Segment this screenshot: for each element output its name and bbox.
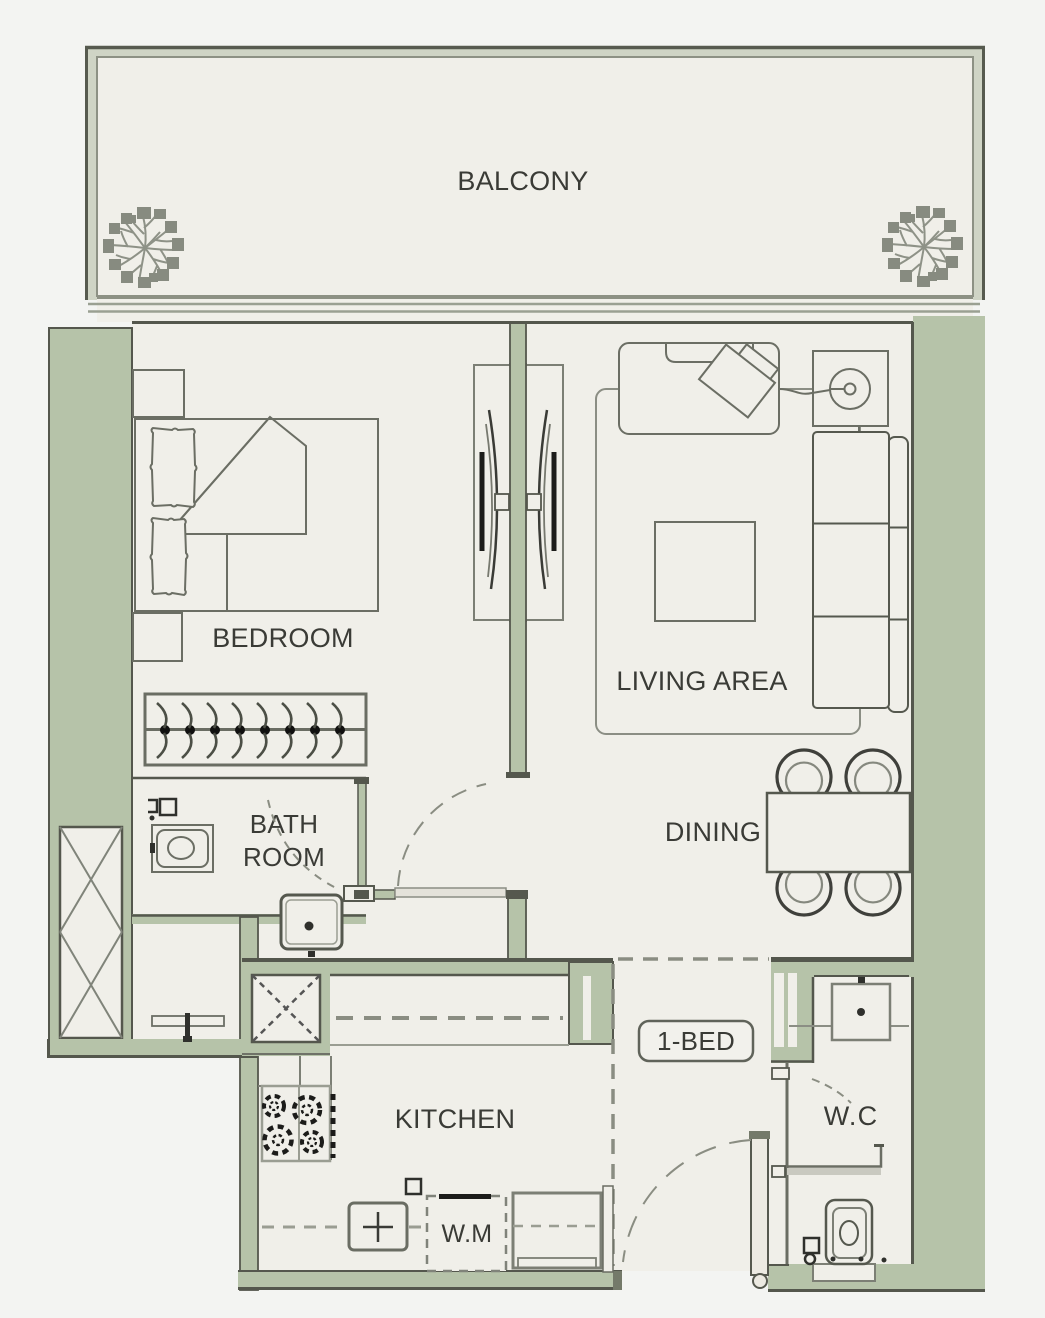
svg-text:1-BED: 1-BED: [657, 1026, 735, 1056]
svg-text:ROOM: ROOM: [243, 842, 325, 872]
svg-text:BEDROOM: BEDROOM: [212, 623, 354, 653]
svg-text:LIVING AREA: LIVING AREA: [616, 666, 787, 696]
svg-text:DINING: DINING: [665, 817, 761, 847]
svg-text:W.C: W.C: [824, 1101, 879, 1131]
svg-text:KITCHEN: KITCHEN: [395, 1104, 516, 1134]
svg-text:BATH: BATH: [250, 809, 319, 839]
svg-text:BALCONY: BALCONY: [457, 166, 588, 196]
svg-text:W.M: W.M: [442, 1220, 493, 1248]
